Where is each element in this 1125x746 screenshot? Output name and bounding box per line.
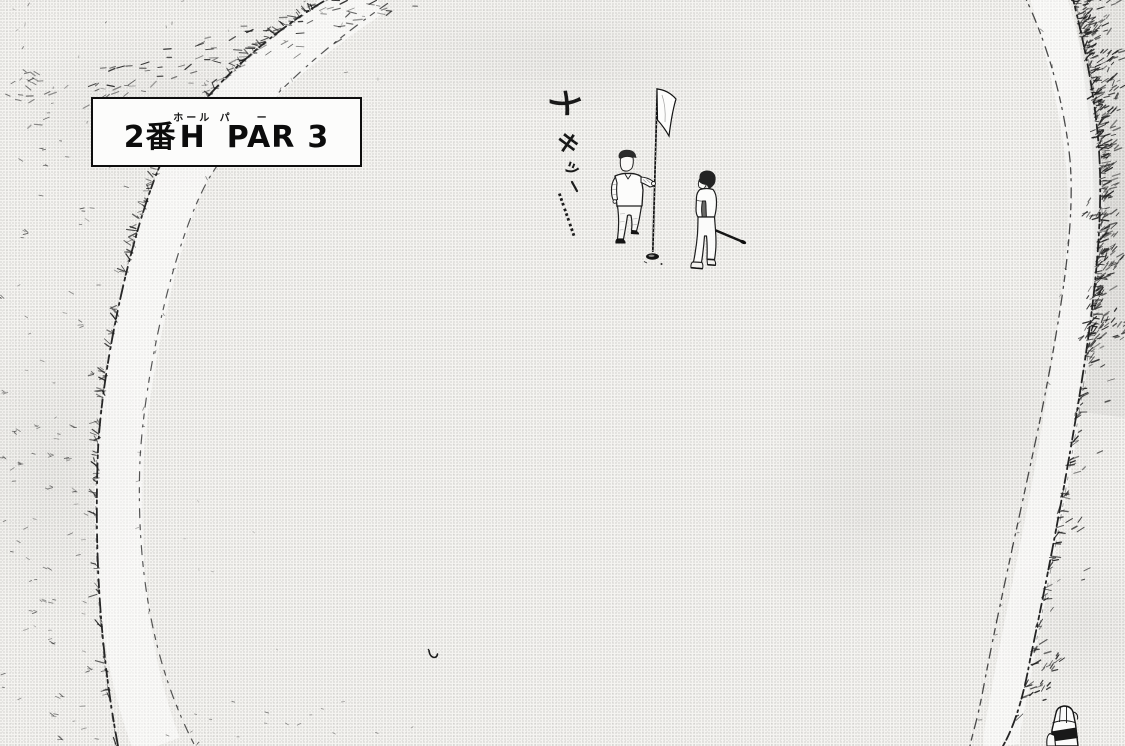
manga-panel: 2番 ホール H パー PAR 3 メ キ ッ ……… — [0, 0, 1125, 746]
sign-part-par: パー PAR — [227, 123, 296, 153]
caddie-figure — [611, 150, 655, 244]
sign-text: 3 — [307, 123, 329, 153]
sign-text: 2番 — [124, 123, 177, 153]
sign-ruby-par: パー — [220, 109, 294, 124]
sign-text-row: 2番 ホール H パー PAR 3 — [124, 111, 329, 153]
right-shoe — [707, 260, 716, 266]
hole-info-sign: 2番 ホール H パー PAR 3 — [91, 97, 362, 167]
player-figure — [691, 170, 747, 268]
left-shoe — [615, 239, 625, 244]
flag — [657, 89, 676, 136]
sign-part-hole-number: 2番 — [124, 123, 177, 153]
sign-text: H — [180, 123, 206, 153]
sign-part-h: ホール H — [180, 123, 206, 153]
divot-mark — [428, 649, 438, 658]
trousers — [694, 217, 717, 263]
hole-cup — [644, 253, 663, 265]
face — [620, 156, 633, 171]
vest — [615, 173, 643, 206]
left-arm — [611, 177, 617, 201]
rough-specks-bottom — [166, 500, 413, 743]
sign-text: PAR — [227, 123, 296, 153]
flagstick — [644, 88, 676, 265]
sfx-dash — [572, 182, 577, 191]
sign-ruby-hole: ホール — [173, 109, 212, 124]
golf-bag — [1047, 706, 1078, 746]
sign-part-par-number: 3 — [307, 123, 329, 153]
right-shoe — [631, 231, 639, 235]
